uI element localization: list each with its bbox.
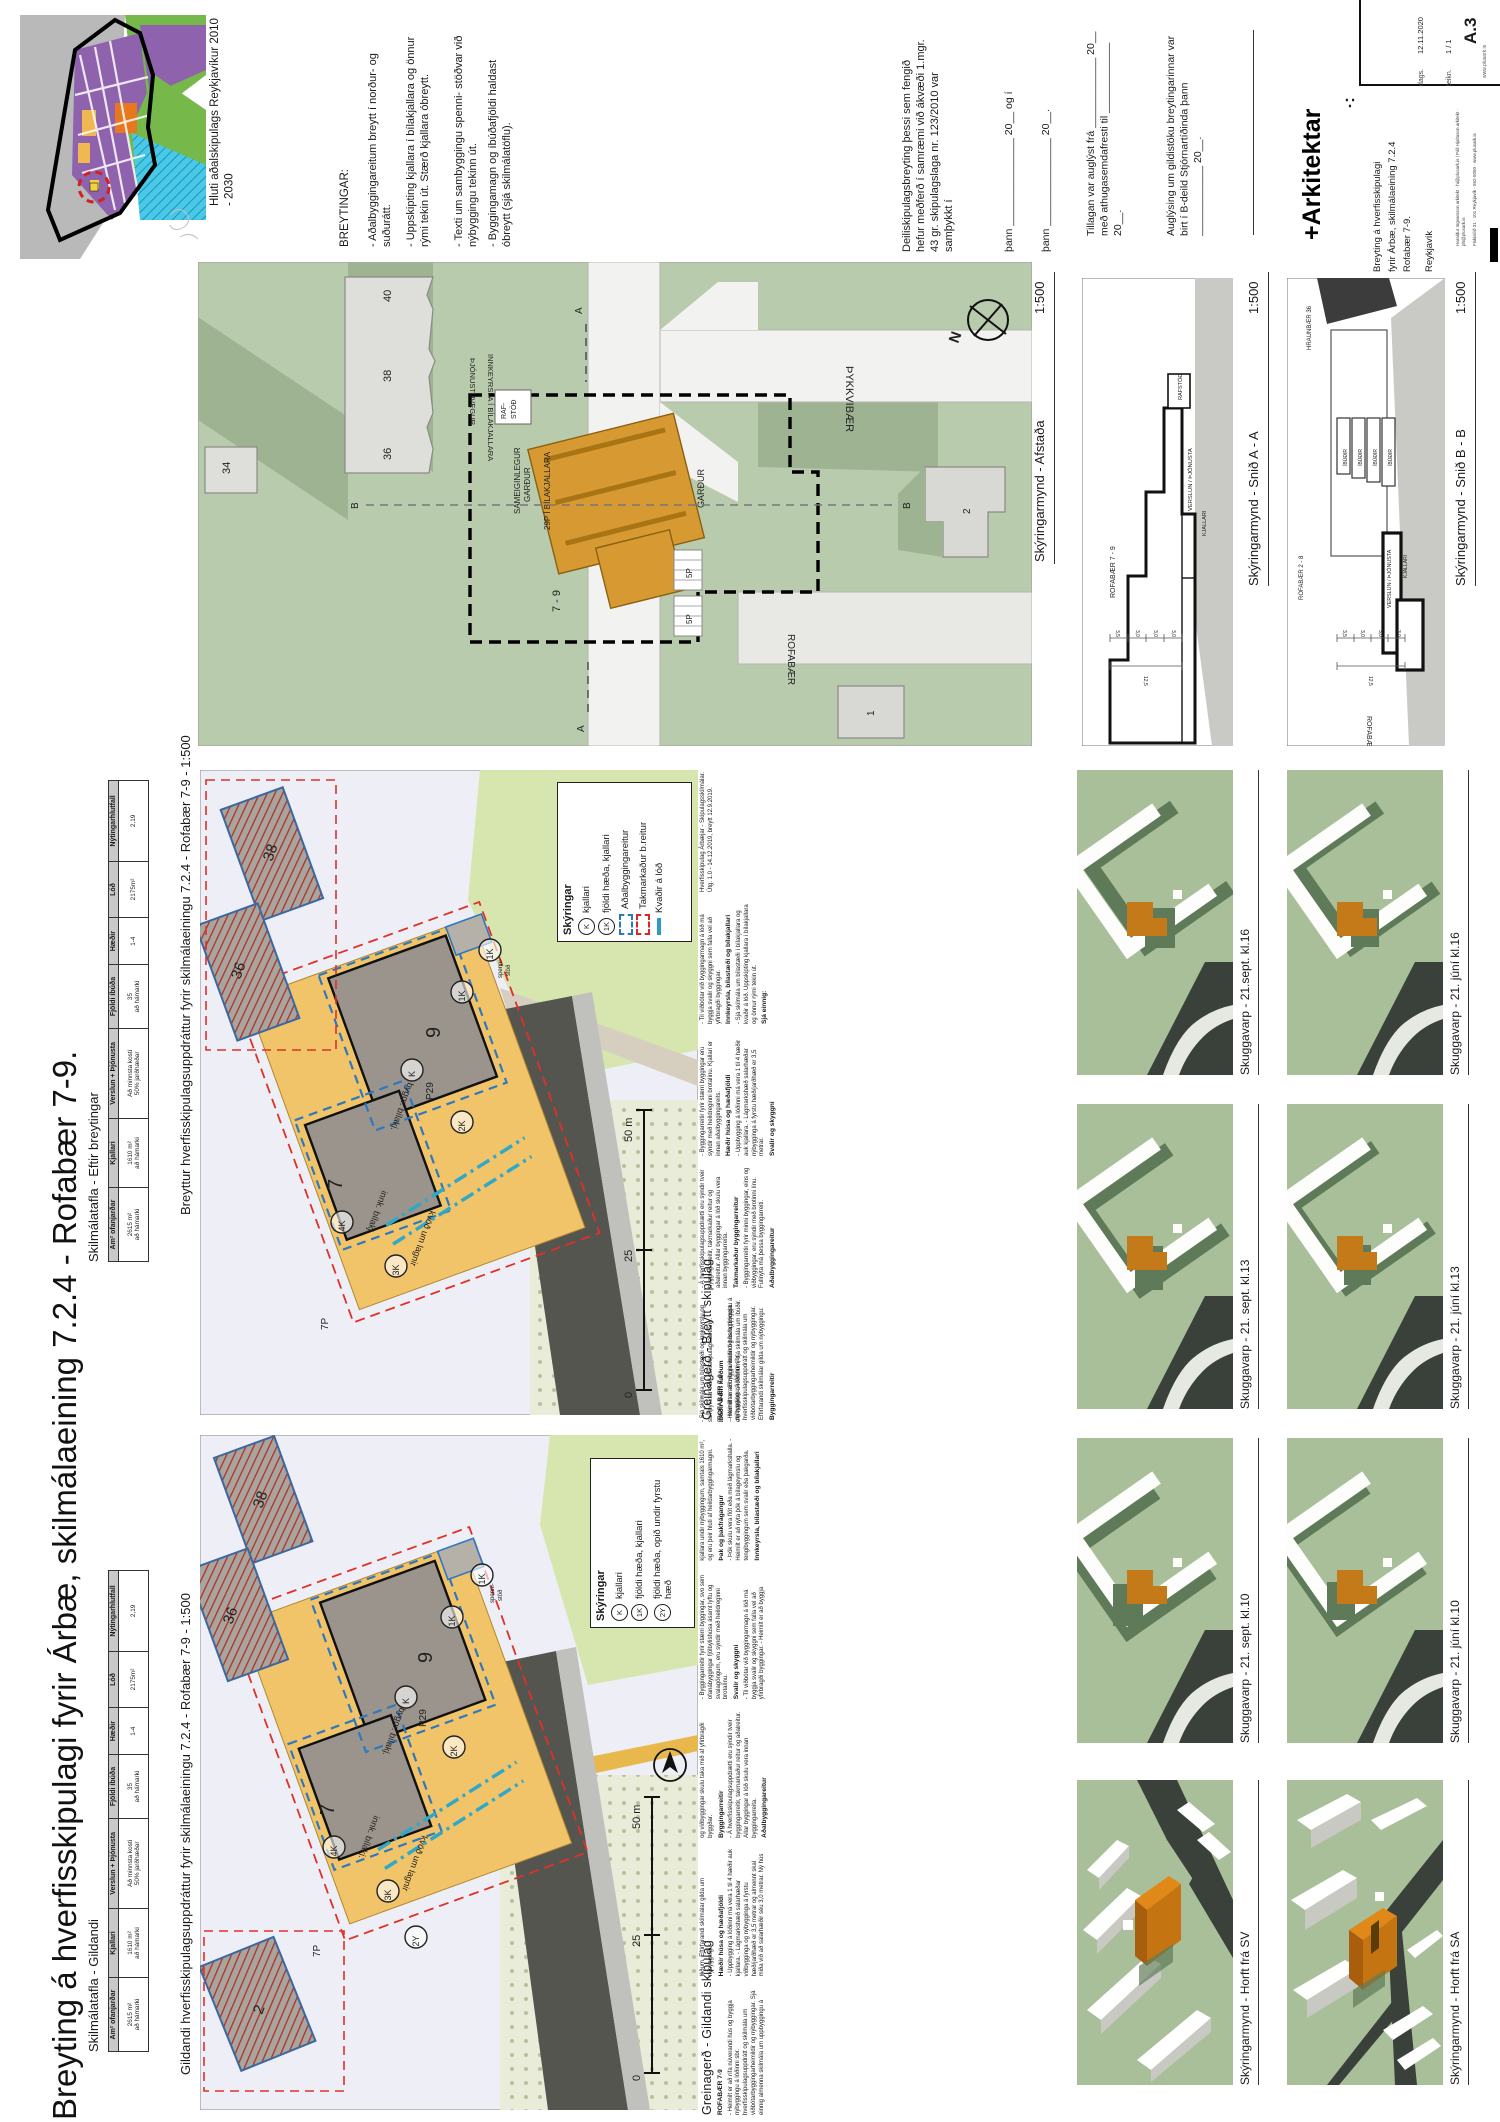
spec-table-gildandi: Am² ofanjarðarKjallari Verslun + Þjónust… xyxy=(108,1570,164,2052)
map-caption: Hluti aðalskipulags Reykjavíkur 2010 - 2… xyxy=(208,18,240,206)
svg-text:3,5: 3,5 xyxy=(1114,630,1120,637)
svg-text:25: 25 xyxy=(623,1250,635,1262)
svg-text:ÍBÚÐIR: ÍBÚÐIR xyxy=(1372,449,1379,466)
shadow-study-sept-16 xyxy=(1077,770,1233,1075)
svg-text:9: 9 xyxy=(415,1652,437,1663)
legend-title: Skýringar xyxy=(595,1465,607,1621)
page-title: Breyting á hverfisskipulagi fyrir Árbæ, … xyxy=(44,1000,86,2120)
svg-text:RAF-: RAF- xyxy=(501,402,508,419)
svg-text:B: B xyxy=(350,502,361,509)
svg-text:B: B xyxy=(902,502,913,509)
project-title-line: fyrir Árbæ, skilmálaeining 7.2.4 xyxy=(1387,100,1399,272)
location-map xyxy=(20,15,206,259)
street-rofabær xyxy=(738,592,1032,664)
new-building xyxy=(1127,902,1153,936)
snidb-scale: 1:500 xyxy=(1453,272,1470,314)
svg-text:3,5: 3,5 xyxy=(1341,630,1347,637)
snida-caption: Skýringarmynd - Snið A - A xyxy=(1246,398,1263,586)
svg-text:4K: 4K xyxy=(329,1845,339,1856)
plan-caption-breytt: Breyttur hverfisskipulagsuppdráttur fyri… xyxy=(178,700,195,1215)
svg-text:1K: 1K xyxy=(457,990,467,1001)
svg-text:ROFABÆR 7 - 9: ROFABÆR 7 - 9 xyxy=(1110,546,1117,598)
svg-text:12,5: 12,5 xyxy=(1142,676,1148,686)
view-3d-sa xyxy=(1287,1780,1443,2085)
plan-caption-gildandi: Gildandi hverfisskipulagsuppdráttur fyri… xyxy=(178,1558,195,2075)
titleblock-divider xyxy=(1253,30,1254,235)
caption-rule xyxy=(1468,1104,1469,1409)
shadow-study-sept-13 xyxy=(1077,1104,1233,1409)
study-caption: Skuggavarp - 21. sept. kl.10 xyxy=(1238,1438,1253,1743)
storey-symbol: K xyxy=(611,1604,628,1621)
svg-text:ROFABÆR: ROFABÆR xyxy=(1365,716,1372,746)
svg-text:1K: 1K xyxy=(447,1615,457,1626)
svg-text:38: 38 xyxy=(382,370,394,382)
svg-text:KJALLARI: KJALLARI xyxy=(1202,510,1208,536)
new-building xyxy=(1337,1570,1363,1604)
approval-date-line: þann _______________ 20__ og í xyxy=(1003,100,1016,252)
architect-credits: Haraldur Ingvarsson arkitekt · hi@plusar… xyxy=(1455,96,1468,246)
project-title-line: Rofabær 7-9. xyxy=(1402,100,1414,272)
firm-logo: +Arkitektar xyxy=(1296,58,1328,240)
svg-text:2: 2 xyxy=(962,508,973,514)
svg-text:3,0: 3,0 xyxy=(1134,630,1140,637)
svg-text:HRAUNBÆR 36: HRAUNBÆR 36 xyxy=(1307,305,1313,350)
breytingar-item: - Uppskipting kjallara í bílakjallara og… xyxy=(404,25,448,247)
drawn-label: teikn. xyxy=(1446,60,1455,86)
svg-text:P29: P29 xyxy=(418,1709,429,1727)
svg-text:A: A xyxy=(574,307,585,314)
svg-text:ÍBÚÐIR: ÍBÚÐIR xyxy=(1387,449,1394,466)
breytingar-heading: BREYTINGAR: xyxy=(338,150,353,247)
svg-text:5P: 5P xyxy=(685,568,694,578)
svg-text:P29: P29 xyxy=(425,1082,436,1100)
breytingar-item: - Texti um sambyggingu spenni- stöðvar v… xyxy=(452,25,482,247)
storey-symbol: 1K xyxy=(598,918,615,935)
svg-text:GARÐUR: GARÐUR xyxy=(696,468,706,508)
section-b-b: HRAUNBÆR 36 ÍBÚÐIR ÍBÚÐIR ÍBÚÐIR ÍBÚÐIR … xyxy=(1287,278,1445,746)
titleblock-line-h xyxy=(1360,84,1500,86)
svg-text:0: 0 xyxy=(623,1392,635,1398)
study-caption: Skýringarmynd - Horft frá SV xyxy=(1238,1780,1253,2085)
svg-text:40: 40 xyxy=(382,290,394,302)
drawn-value: 1 / 1 xyxy=(1444,24,1454,54)
spec-table: Am² ofanjarðarKjallari Verslun + Þjónust… xyxy=(108,780,149,1262)
svg-text:spenni-: spenni- xyxy=(490,1583,496,1603)
svg-text:ÍBÚÐIR: ÍBÚÐIR xyxy=(1342,449,1349,466)
svg-text:VERSLUN / ÞJÓNUSTA: VERSLUN / ÞJÓNUSTA xyxy=(1386,549,1393,608)
svg-text:3,0: 3,0 xyxy=(1152,630,1158,637)
svg-text:ÍBÚÐIR: ÍBÚÐIR xyxy=(1357,449,1364,466)
caption-rule xyxy=(1468,770,1469,1075)
new-building xyxy=(1337,902,1363,936)
svg-text:ROFABÆR 2 - 8: ROFABÆR 2 - 8 xyxy=(1299,555,1305,600)
snida-scale: 1:500 xyxy=(1246,272,1263,314)
svg-text:3,0: 3,0 xyxy=(1170,630,1176,637)
svg-text:ROFABÆR: ROFABÆR xyxy=(785,634,796,685)
svg-text:SAMEIGINLEGUR: SAMEIGINLEGUR xyxy=(513,447,522,514)
afstada-caption: Skýringarmynd - Afstaða xyxy=(1032,400,1049,562)
sheet-number: A.3 xyxy=(1460,10,1482,44)
project-title-line: Breyting á hverfisskipulagi xyxy=(1372,100,1384,272)
section-a-a: ROFABÆR 7 - 9 RAFSTÖÐ VERSLUN / ÞJÓNUSTA… xyxy=(1082,278,1233,746)
caption-rule xyxy=(1258,1438,1259,1743)
svg-text:50 m: 50 m xyxy=(623,1118,635,1142)
svg-text:3K: 3K xyxy=(391,1264,401,1275)
svg-text:2K: 2K xyxy=(457,1120,467,1131)
caption-rule xyxy=(1468,1438,1469,1743)
spec-table: Am² ofanjarðarKjallari Verslun + Þjónust… xyxy=(108,1570,149,2052)
svg-text:stöð: stöð xyxy=(497,1589,504,1601)
snidb-caption-rule xyxy=(1475,272,1476,586)
snida-caption-rule xyxy=(1268,272,1269,586)
svg-text:VERSLUN / ÞJÓNUSTA: VERSLUN / ÞJÓNUSTA xyxy=(1187,448,1194,511)
svg-text:spenni-: spenni- xyxy=(498,958,504,978)
study-caption: Skuggavarp - 21. júní kl.16 xyxy=(1448,770,1463,1075)
shadow-study-jun-16 xyxy=(1287,770,1443,1075)
svg-text:36: 36 xyxy=(382,448,394,460)
svg-text:34: 34 xyxy=(221,462,233,474)
svg-text:INNKEYRSLA Í BÍLAKJALLARA: INNKEYRSLA Í BÍLAKJALLARA xyxy=(486,354,495,461)
svg-text:12,5: 12,5 xyxy=(1367,676,1373,686)
new-building xyxy=(1337,1236,1363,1270)
svg-text:3K: 3K xyxy=(383,1889,393,1900)
svg-text:7P: 7P xyxy=(320,1317,331,1330)
caption-rule xyxy=(1258,770,1259,1075)
breytingar-item: - Byggingamagn og íbúðafjöldi haldast ób… xyxy=(486,25,516,247)
view-3d-sv xyxy=(1077,1780,1233,2085)
snidb-caption: Skýringarmynd - Snið B - B xyxy=(1453,398,1470,586)
breytingar-item: - Aðalbyggingareitum breytt í norður- og… xyxy=(366,25,396,247)
new-building xyxy=(1127,1570,1153,1604)
svg-text:7: 7 xyxy=(325,1179,347,1190)
study-caption: Skýringarmynd - Horft frá SA xyxy=(1448,1780,1463,2085)
storey-symbol: 2Y xyxy=(654,1604,671,1621)
titleblock-bar xyxy=(1490,228,1498,262)
afstada-caption-rule xyxy=(1054,272,1055,564)
plan-sheet: Breyting á hverfisskipulagi fyrir Árbæ, … xyxy=(0,0,1500,2122)
svg-text:2K: 2K xyxy=(449,1745,459,1756)
spec-table-breytt: Am² ofanjarðarKjallari Verslun + Þjónust… xyxy=(108,780,164,1262)
shadow-study-jun-10 xyxy=(1287,1438,1443,1743)
study-caption: Skuggavarp - 21. sept. kl.13 xyxy=(1238,1104,1253,1409)
approval-date-line: þann _______________ 20__. xyxy=(1040,118,1053,252)
svg-text:A: A xyxy=(576,725,587,732)
svg-text:25: 25 xyxy=(631,1935,643,1947)
caption-rule xyxy=(1258,1780,1259,2085)
new-building xyxy=(1127,1236,1153,1270)
svg-text:7 - 9: 7 - 9 xyxy=(551,590,563,612)
advertised-paragraph: Tillagan var auglýst frá ____________ 20… xyxy=(1085,28,1135,236)
svg-text:KJALLARI: KJALLARI xyxy=(1403,555,1409,578)
svg-text:3,0: 3,0 xyxy=(1395,630,1401,637)
svg-text:K: K xyxy=(407,1071,417,1077)
svg-text:K: K xyxy=(401,1698,411,1704)
study-caption: Skuggavarp - 21. júní kl.10 xyxy=(1448,1438,1463,1743)
svg-text:0: 0 xyxy=(631,2075,643,2081)
svg-text:STÖÐ: STÖÐ xyxy=(510,400,518,419)
caption-rule xyxy=(1258,1104,1259,1409)
svg-text:1: 1 xyxy=(866,710,877,716)
logo-mark-icon: ∴ xyxy=(1341,86,1360,112)
caption-rule xyxy=(1468,1780,1469,2085)
svg-text:GARÐUR: GARÐUR xyxy=(523,467,532,502)
published-paragraph: Auglýsing um gildistöku breytingarinnar … xyxy=(1165,28,1217,236)
greinagerd-gildandi: Greinagerð - Gildandi skipulag ROFABÆR 7… xyxy=(700,1432,778,2115)
svg-text:5P: 5P xyxy=(685,614,694,624)
svg-text:stöð: stöð xyxy=(505,964,512,976)
svg-text:1K: 1K xyxy=(477,1573,487,1584)
svg-text:1K: 1K xyxy=(485,948,495,959)
date-label: dags. xyxy=(1418,60,1427,86)
red-dash-swatch xyxy=(636,914,650,935)
afstada-scale: 1:500 xyxy=(1032,272,1049,314)
svg-text:29P Í BÍLAKJALLARA: 29P Í BÍLAKJALLARA xyxy=(543,451,552,530)
shadow-study-sept-10 xyxy=(1077,1438,1233,1743)
study-caption: Skuggavarp - 21. júní kl.13 xyxy=(1448,1104,1463,1409)
svg-text:9: 9 xyxy=(423,1027,445,1038)
storey-symbol: K xyxy=(578,918,595,935)
svg-text:4K: 4K xyxy=(337,1220,347,1231)
firm-address: Fiskislóð 31 · 101 Reykjavík · 562-5050 … xyxy=(1472,96,1478,246)
svg-text:3,0: 3,0 xyxy=(1359,630,1365,637)
legend-title: Skýringar xyxy=(562,789,574,935)
table-heading-gildandi: Skilmálatafla - Gildandi xyxy=(86,1886,103,2052)
study-caption: Skuggavarp - 21.sept. kl.16 xyxy=(1238,770,1253,1075)
table-heading-breytt: Skilmálatafla - Eftir breytingar xyxy=(86,1040,103,1262)
greinagerd-heading: Greinagerð - Gildandi skipulag xyxy=(700,1986,714,2115)
titleblock-line-v xyxy=(1359,0,1361,86)
project-city: Reykjavík xyxy=(1424,100,1436,272)
blue-dash-swatch xyxy=(619,914,633,935)
svg-text:50 m: 50 m xyxy=(631,1805,643,1829)
date-value: 12.11.2020 xyxy=(1416,8,1426,54)
svg-text:7P: 7P xyxy=(312,1944,323,1957)
firm-website: www.plusark.is xyxy=(1482,36,1488,78)
svg-text:7: 7 xyxy=(317,1804,339,1815)
legend-breytt: Skýringar Kkjallari 1Kfjöldi hæða, kjall… xyxy=(557,782,692,942)
shadow-study-jun-13 xyxy=(1287,1104,1443,1409)
svg-text:3,0: 3,0 xyxy=(1377,630,1383,637)
approval-paragraph: Deiliskipulagsbreyting þessi sem fengið … xyxy=(900,32,962,252)
svg-text:ÞYKKVIBÆR: ÞYKKVIBÆR xyxy=(843,366,855,432)
blue-line-swatch xyxy=(657,918,661,935)
legend-gildandi: Skýringar Kkjallari 1Kfjöldi hæða, kjall… xyxy=(590,1458,695,1628)
site-plan-afstada: 40 38 36 34 ÞYKKVIBÆR ROFABÆR 7 - 9 RAF-… xyxy=(198,262,1032,746)
storey-symbol: 1K xyxy=(631,1604,648,1621)
svg-text:ÞJÓNUSTUVEGUR: ÞJÓNUSTUVEGUR xyxy=(468,358,477,426)
svg-text:2Y: 2Y xyxy=(411,1935,421,1946)
svg-text:RAFSTÖÐ: RAFSTÖÐ xyxy=(1177,374,1184,400)
